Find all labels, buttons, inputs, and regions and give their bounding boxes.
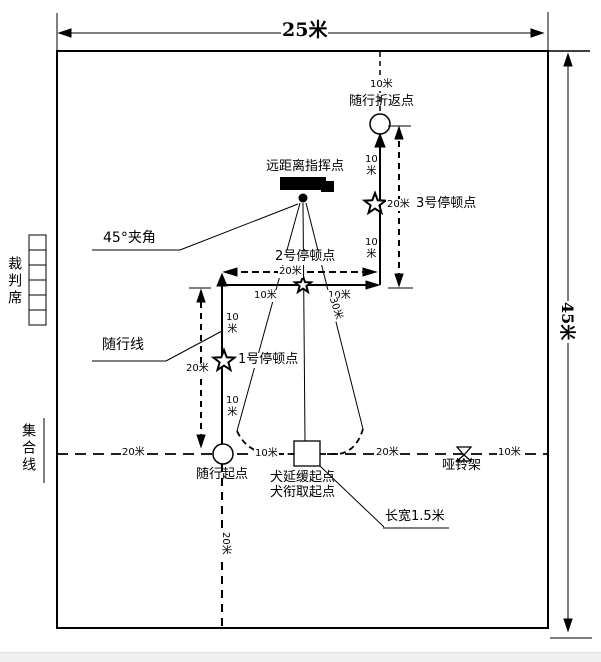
arrow-up-icon [564,54,572,66]
dim-20m-below: 20米 [220,531,232,556]
start-box-marker [294,441,320,466]
dim-10m-left-lower: 10 米 [225,395,240,419]
window-footer-strip [0,652,601,662]
dumbbell-rack-label: 哑铃架 [442,459,481,474]
dim-20m-assembly-2: 20米 [375,447,400,459]
field-width-label: 25米 [281,20,328,42]
angle-45-label: 45°夹角 [103,230,156,246]
dim-20m-left: 20米 [185,363,210,375]
turnback-point-marker [370,114,390,134]
field-layout-diagram: 25米 45米 裁判席 集合线 10米 随行折返点 远距离指挥点 10 米 20… [0,0,601,662]
dim-20m-assembly-left: 20米 [121,447,146,459]
heeling-start-marker [213,444,233,464]
heeling-line-label: 随行线 [102,337,144,353]
right-height-dimension [550,54,592,638]
dog-delay-start-label: 犬延缓起点 [270,471,335,486]
judges-seat-label: 裁判席 [6,256,22,307]
turnback-point-label: 随行折返点 [349,95,414,110]
assembly-line-label: 集合线 [20,423,36,474]
remote-command-marker [299,194,308,203]
arrow-left-icon [59,29,71,37]
stop-point-2-label: 2号停顿点 [274,250,336,265]
dim-10m-left-upper: 10 米 [225,312,240,336]
dim-10m-right-upper: 10 米 [364,154,379,178]
heeling-start-label: 随行起点 [196,468,248,483]
stop-point-3-label: 3号停顿点 [416,197,476,212]
dim-10m-assembly-1: 10米 [254,448,279,460]
stop-point-1-label: 1号停顿点 [237,353,299,368]
arrow-right-icon [531,29,543,37]
judges-seat-boxes [29,235,46,325]
dim-10m-mid-left: 10米 [253,290,278,302]
dim-20m-right: 20米 [386,199,411,211]
redaction-block [280,177,334,192]
dim-20m-middle: 20米 [278,266,303,278]
box-size-label: 长宽1.5米 [385,510,445,525]
dim-10m-top: 10米 [369,79,394,91]
dim-10m-assembly-2: 10米 [497,447,522,459]
remote-command-label: 远距离指挥点 [266,160,344,175]
arrow-down-icon [564,619,572,631]
dog-fetch-start-label: 犬衔取起点 [270,486,335,501]
dim-10m-right-lower: 10 米 [364,237,379,261]
field-height-label: 45米 [558,301,576,343]
diagram-canvas [0,0,601,662]
